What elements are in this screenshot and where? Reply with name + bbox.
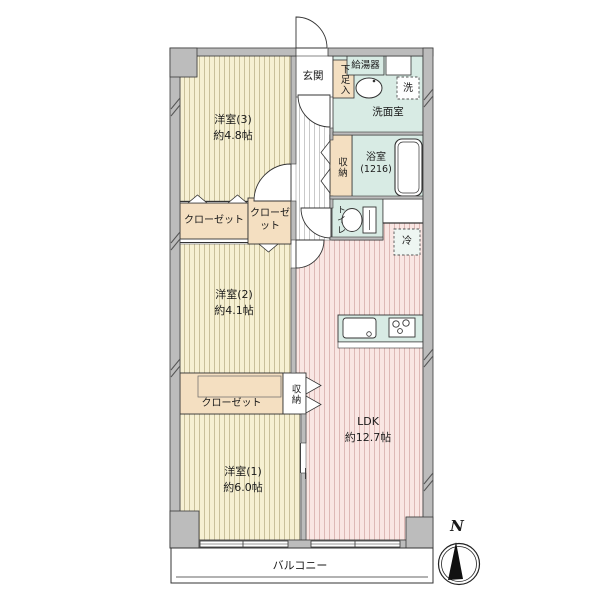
closet-room2-label: クローゼット xyxy=(250,208,290,233)
washroom-label: 洗面室 xyxy=(353,105,423,120)
room1-size: 約6.0帖 xyxy=(193,480,293,496)
entrance-door-arc xyxy=(296,17,327,48)
water-heater-label: 給湯器 xyxy=(347,59,384,73)
stove-icon xyxy=(389,318,415,337)
room3-label: 洋室(3) 約4.8帖 xyxy=(183,112,283,144)
laundry-label: 洗 xyxy=(397,82,419,97)
closet-room1-label: クローゼット xyxy=(180,397,283,412)
room1-label: 洋室(1) 約6.0帖 xyxy=(193,464,293,496)
compass-north-label: N xyxy=(446,516,468,538)
bathroom-size: (1216) xyxy=(352,164,400,176)
fridge-label: 冷 xyxy=(394,235,420,250)
compass-icon xyxy=(439,542,480,585)
toilet-label: トイレ xyxy=(333,203,348,237)
room3-name: 洋室(3) xyxy=(183,112,283,128)
balcony-label: バルコニー xyxy=(230,558,370,574)
floor-plan: 洋室(3) 約4.8帖 洋室(2) 約4.1帖 洋室(1) 約6.0帖 LDK … xyxy=(0,0,600,600)
washbasin-icon xyxy=(356,78,382,98)
ldk-size: 約12.7帖 xyxy=(318,430,418,446)
counter-space xyxy=(383,199,423,223)
bathroom-label: 浴室 (1216) xyxy=(352,151,400,176)
bathroom-name: 浴室 xyxy=(352,151,400,164)
closet-room3-label: クローゼット xyxy=(180,214,248,229)
room-ldk-floor xyxy=(296,223,423,540)
meter-box xyxy=(386,56,411,75)
ldk-label: LDK 約12.7帖 xyxy=(318,414,418,446)
ldk-name: LDK xyxy=(318,414,418,430)
kitchen-counter xyxy=(338,315,423,348)
room2-label: 洋室(2) 約4.1帖 xyxy=(184,287,284,319)
floor-plan-drawing xyxy=(0,0,600,600)
room2-name: 洋室(2) xyxy=(184,287,284,303)
room3-size: 約4.8帖 xyxy=(183,128,283,144)
ldk-storage-label: 収納 xyxy=(284,377,305,411)
genkan-label: 玄関 xyxy=(293,69,333,84)
room2-size: 約4.1帖 xyxy=(184,303,284,319)
hall-storage-label: 収納 xyxy=(331,144,351,190)
room1-name: 洋室(1) xyxy=(193,464,293,480)
